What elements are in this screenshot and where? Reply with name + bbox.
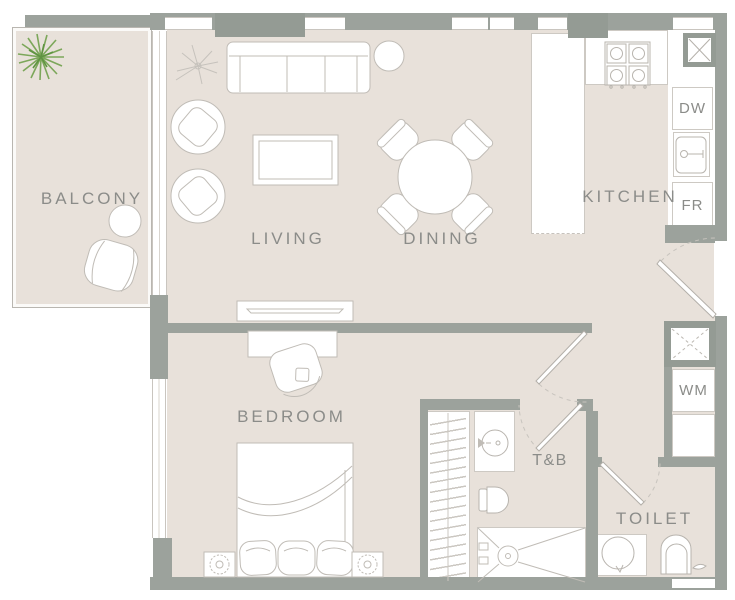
shaft-top-inner — [688, 38, 711, 62]
wardrobe-hangers — [430, 416, 466, 578]
room-label-tb: T&B — [518, 452, 582, 470]
window-top-3 — [452, 17, 488, 30]
toilet-top-wall-right — [658, 457, 716, 467]
bottom-wall — [150, 577, 727, 590]
window-top-6 — [673, 17, 713, 30]
window-top-1 — [165, 17, 212, 30]
room-label-kitchen: KITCHEN — [580, 187, 680, 207]
room-label-living: LIVING — [233, 229, 343, 249]
balcony-floor — [12, 27, 152, 308]
shower-tray — [477, 527, 586, 583]
toilet-sink-counter — [592, 534, 647, 576]
bottom-left-corner-wall — [153, 538, 172, 578]
living-window — [152, 31, 167, 295]
kitchen-counter-top — [585, 30, 668, 85]
utility-column-wall — [664, 367, 672, 457]
window-top-2 — [305, 17, 345, 30]
living-bedroom-wall — [167, 323, 592, 333]
appliance-label-fr: FR — [672, 197, 713, 214]
room-label-balcony: BALCONY — [30, 189, 154, 209]
window-top-5 — [538, 17, 567, 30]
kitchen-sink-box — [673, 132, 710, 177]
dryer-box — [672, 414, 715, 457]
floor-plan: BALCONY LIVING DINING KITCHEN BEDROOM T&… — [0, 0, 735, 600]
left-mid-wall — [150, 295, 168, 379]
top-wall-bulkhead-kitchen — [568, 13, 608, 38]
toilet-top-wall-left — [586, 457, 602, 467]
fridge-stub-wall — [665, 225, 715, 243]
balcony-top-wall — [25, 15, 152, 27]
bedroom-tb-wall — [420, 399, 428, 577]
wardrobe — [426, 411, 470, 583]
window-top-4 — [490, 17, 514, 30]
appliance-label-dw: DW — [672, 100, 713, 117]
kitchen-counter-left — [531, 33, 585, 234]
appliance-label-wm: WM — [672, 382, 715, 399]
top-wall-bulkhead-left — [215, 13, 305, 37]
room-label-dining: DINING — [387, 229, 497, 249]
room-label-toilet: TOILET — [608, 509, 701, 529]
entrance-opening — [714, 241, 728, 316]
tb-top-wall — [420, 399, 520, 410]
shaft-mid-inner — [671, 328, 709, 360]
tb-right-wall — [586, 411, 598, 577]
tb-door-stub — [577, 399, 593, 411]
bottom-wall-notch — [672, 579, 715, 588]
bedroom-window — [152, 379, 166, 538]
room-label-bedroom: BEDROOM — [233, 407, 350, 427]
tb-sink-counter — [474, 411, 515, 472]
